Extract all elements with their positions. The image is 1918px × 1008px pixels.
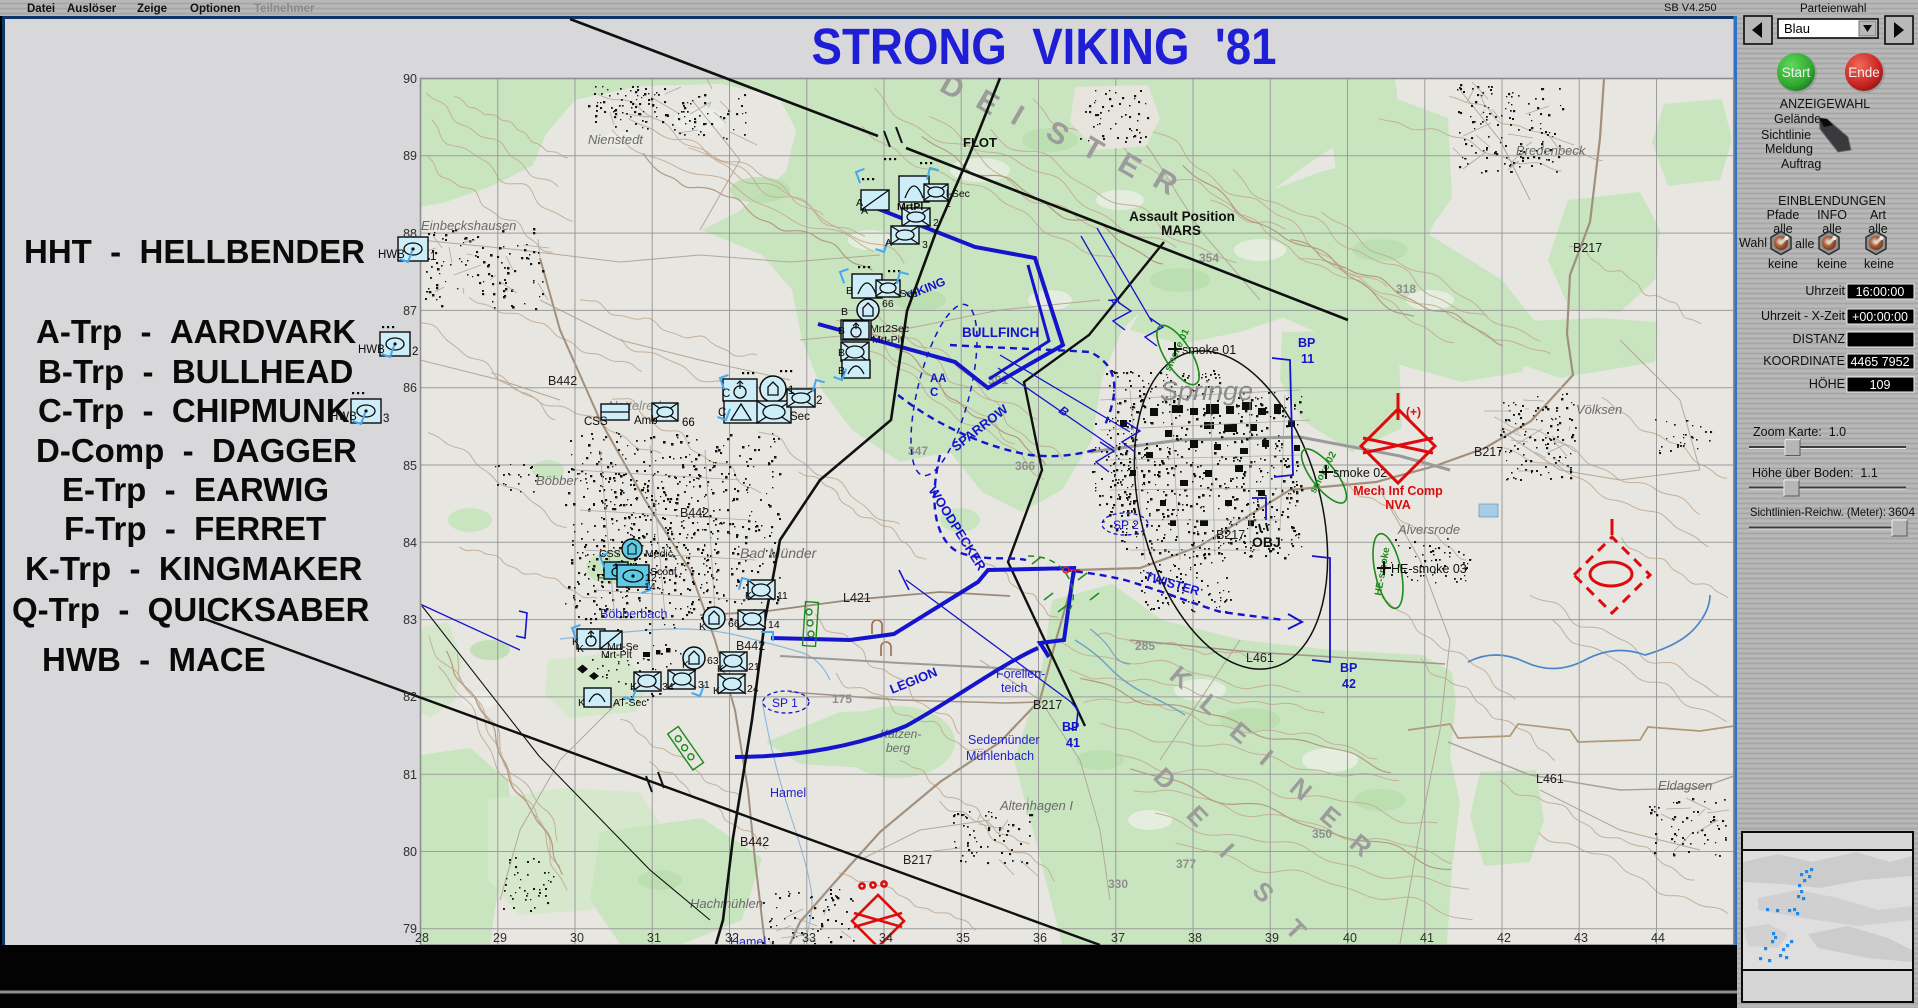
svg-text:B: B — [838, 325, 845, 337]
svg-text:3: 3 — [383, 413, 389, 425]
svg-text:Q-Trp - QUICKSABER: Q-Trp - QUICKSABER — [12, 591, 370, 628]
svg-text:88: 88 — [403, 227, 417, 241]
svg-text:F: F — [597, 572, 603, 584]
svg-text:C: C — [718, 407, 726, 419]
svg-text:BP: BP — [1062, 720, 1079, 734]
svg-text:80: 80 — [403, 845, 417, 859]
svg-text:L461: L461 — [1246, 651, 1274, 665]
svg-text:A-Trp - AARDVARK: A-Trp - AARDVARK — [36, 313, 356, 350]
svg-text:K: K — [578, 697, 585, 709]
svg-text:Pfade: Pfade — [1767, 208, 1800, 222]
svg-text:DISTANZ: DISTANZ — [1792, 332, 1845, 346]
svg-text:16:00:00: 16:00:00 — [1856, 285, 1905, 299]
svg-text:Sedemünder: Sedemünder — [968, 733, 1040, 747]
svg-text:SB V4.250: SB V4.250 — [1664, 2, 1717, 14]
svg-text:28: 28 — [415, 931, 429, 945]
svg-text:81: 81 — [403, 768, 417, 782]
svg-text:330: 330 — [1108, 877, 1128, 891]
svg-text:Amb: Amb — [634, 415, 658, 427]
svg-text:41: 41 — [1420, 931, 1434, 945]
svg-text:HWB: HWB — [358, 344, 385, 356]
svg-text:66: 66 — [682, 417, 695, 429]
svg-text:Start: Start — [1782, 65, 1811, 80]
svg-text:318: 318 — [1396, 282, 1416, 296]
svg-text:Assault Position: Assault Position — [1129, 209, 1235, 224]
svg-text:31: 31 — [698, 679, 710, 691]
svg-text:Alversrode: Alversrode — [1397, 522, 1460, 537]
svg-text:K: K — [717, 663, 724, 675]
svg-text:K: K — [682, 659, 689, 671]
svg-text:B: B — [838, 347, 845, 359]
svg-text:K: K — [745, 590, 752, 602]
svg-text:AA: AA — [930, 373, 947, 385]
svg-text:SP 2: SP 2 — [1113, 518, 1139, 532]
svg-text:Sec: Sec — [790, 411, 810, 423]
svg-text:K: K — [713, 685, 720, 697]
svg-text:F-Trp - FERRET: F-Trp - FERRET — [64, 510, 326, 547]
svg-text:66: 66 — [882, 298, 894, 310]
svg-text:C: C — [722, 388, 730, 400]
svg-text:Mrt-Plt: Mrt-Plt — [601, 649, 632, 661]
svg-text:-Sec: -Sec — [896, 288, 918, 300]
svg-text:K: K — [699, 621, 706, 633]
svg-text:42: 42 — [1342, 677, 1356, 691]
svg-text:85: 85 — [403, 459, 417, 473]
svg-text:Blau: Blau — [1784, 21, 1810, 36]
svg-text:Datei: Datei — [27, 3, 55, 15]
svg-text:35: 35 — [956, 931, 970, 945]
svg-text:43: 43 — [1574, 931, 1588, 945]
svg-text:Böbber: Böbber — [536, 473, 579, 488]
svg-text:D-Comp - DAGGER: D-Comp - DAGGER — [36, 432, 357, 469]
svg-text:Gelände: Gelände — [1774, 112, 1821, 126]
svg-text:37: 37 — [1111, 931, 1125, 945]
svg-text:377: 377 — [1176, 857, 1196, 871]
svg-text:90: 90 — [403, 72, 417, 86]
svg-text:36: 36 — [1033, 931, 1047, 945]
svg-text:B-Trp - BULLHEAD: B-Trp - BULLHEAD — [38, 353, 353, 390]
svg-text:A: A — [861, 205, 868, 217]
svg-text:STRONG VIKING '81: STRONG VIKING '81 — [812, 18, 1277, 75]
svg-text:smoke 01: smoke 01 — [1182, 343, 1236, 357]
svg-text:K-Trp - KINGMAKER: K-Trp - KINGMAKER — [25, 550, 362, 587]
svg-text:Altenhagen I: Altenhagen I — [999, 798, 1073, 813]
svg-text:FLOT: FLOT — [963, 135, 997, 150]
svg-text:HWB: HWB — [378, 249, 405, 261]
svg-text:Art: Art — [1870, 208, 1887, 222]
svg-text:175: 175 — [832, 692, 852, 706]
svg-text:4465 7952: 4465 7952 — [1850, 355, 1909, 369]
svg-text:86: 86 — [403, 381, 417, 395]
svg-text:B: B — [838, 365, 845, 377]
svg-text:A: A — [885, 237, 892, 249]
svg-text:L461: L461 — [1536, 772, 1564, 786]
svg-text:BP: BP — [1340, 661, 1357, 675]
svg-text:Mühlenbach: Mühlenbach — [966, 749, 1034, 763]
svg-text:B217: B217 — [903, 853, 932, 867]
svg-text:1: 1 — [788, 385, 794, 397]
svg-text:84: 84 — [403, 536, 417, 550]
svg-text:B: B — [846, 285, 853, 297]
svg-text:Parteienwahl: Parteienwahl — [1800, 3, 1866, 15]
svg-text:B217: B217 — [1033, 698, 1062, 712]
svg-text:Einbeckshausen: Einbeckshausen — [421, 218, 516, 233]
svg-text:smoke 02: smoke 02 — [1333, 466, 1387, 480]
svg-text:BULLFINCH: BULLFINCH — [962, 325, 1039, 340]
svg-text:31: 31 — [647, 931, 661, 945]
svg-text:Sichtlinie: Sichtlinie — [1761, 128, 1811, 142]
svg-text:42: 42 — [1497, 931, 1511, 945]
svg-text:1: 1 — [430, 251, 436, 263]
svg-text:Völksen: Völksen — [1576, 402, 1622, 417]
svg-text:B217: B217 — [1573, 241, 1602, 255]
svg-text:MrtPl: MrtPl — [897, 201, 923, 213]
svg-text:Bredenbeck: Bredenbeck — [1516, 143, 1587, 158]
svg-text:41: 41 — [1066, 736, 1080, 750]
svg-text:Sichtlinien-Reichw. (Meter):: Sichtlinien-Reichw. (Meter): — [1750, 505, 1886, 519]
svg-text:ANZEIGEWAHL: ANZEIGEWAHL — [1780, 97, 1871, 111]
svg-text:366: 366 — [1015, 459, 1035, 473]
svg-text:BP: BP — [1298, 336, 1315, 350]
svg-text:NVA: NVA — [1385, 498, 1410, 512]
svg-text:Medic: Medic — [645, 548, 673, 560]
svg-text:Höhe über Boden: 1.1: Höhe über Boden: 1.1 — [1752, 466, 1878, 480]
svg-text:B: B — [841, 306, 848, 318]
svg-text:keine: keine — [1768, 257, 1798, 271]
svg-text:+00:00:00: +00:00:00 — [1852, 310, 1908, 324]
svg-text:Meldung: Meldung — [1765, 142, 1813, 156]
svg-text:AT-Sec: AT-Sec — [613, 697, 647, 709]
svg-text:89: 89 — [403, 149, 417, 163]
svg-text:Zoom Karte: 1.0: Zoom Karte: 1.0 — [1753, 425, 1846, 439]
svg-text:32: 32 — [725, 931, 739, 945]
svg-text:Eldagsen: Eldagsen — [1658, 778, 1712, 793]
svg-text:MARS: MARS — [1161, 223, 1201, 238]
svg-text:B442: B442 — [680, 506, 709, 520]
svg-text:1: 1 — [945, 198, 951, 210]
svg-text:OBJ: OBJ — [1252, 534, 1281, 550]
svg-text:Teilnehmer: Teilnehmer — [254, 3, 315, 15]
svg-text:Zeige: Zeige — [137, 3, 167, 15]
svg-text:CSS: CSS — [599, 548, 621, 560]
svg-text:K: K — [630, 681, 637, 693]
svg-text:Auslöser: Auslöser — [67, 3, 117, 15]
svg-text:Ende: Ende — [1848, 65, 1880, 80]
svg-text:Wahl: Wahl — [1739, 236, 1767, 250]
svg-text:Auftrag: Auftrag — [1781, 157, 1821, 171]
svg-text:C: C — [930, 387, 938, 399]
svg-text:40: 40 — [1343, 931, 1357, 945]
svg-text:INFO: INFO — [1817, 208, 1847, 222]
svg-text:Uhrzeit - X-Zeit: Uhrzeit - X-Zeit — [1761, 309, 1846, 323]
svg-text:EINBLENDUNGEN: EINBLENDUNGEN — [1778, 194, 1886, 208]
svg-text:keine: keine — [1817, 257, 1847, 271]
svg-text:11: 11 — [1301, 352, 1314, 366]
svg-text:29: 29 — [493, 931, 507, 945]
svg-text:teich: teich — [1001, 681, 1027, 695]
svg-text:keine: keine — [1864, 257, 1894, 271]
svg-text:2: 2 — [933, 217, 939, 229]
svg-text:Forellen-: Forellen- — [996, 667, 1045, 681]
svg-text:66: 66 — [728, 618, 740, 630]
svg-text:Springe: Springe — [1160, 376, 1253, 406]
svg-text:2: 2 — [816, 395, 822, 407]
svg-text:Optionen: Optionen — [190, 3, 240, 15]
svg-text:14: 14 — [768, 619, 780, 631]
svg-text:Uhrzeit: Uhrzeit — [1805, 284, 1845, 298]
svg-text:HHT - HELLBENDER: HHT - HELLBENDER — [24, 233, 365, 270]
svg-text:285: 285 — [1135, 639, 1155, 653]
svg-text:21: 21 — [748, 661, 760, 673]
svg-text:SP 1: SP 1 — [772, 696, 798, 710]
svg-text:L421: L421 — [843, 591, 871, 605]
svg-text:87: 87 — [403, 304, 417, 318]
svg-text:alle: alle — [1795, 237, 1815, 251]
svg-text:B217: B217 — [1474, 445, 1503, 459]
svg-text:E-Trp - EARWIG: E-Trp - EARWIG — [62, 471, 329, 508]
svg-text:Mech Inf Comp: Mech Inf Comp — [1353, 484, 1443, 498]
svg-text:HE-smoke 03: HE-smoke 03 — [1391, 562, 1467, 576]
svg-text:14: 14 — [644, 581, 656, 593]
svg-text:B442: B442 — [548, 374, 577, 388]
svg-text:44: 44 — [1651, 931, 1665, 945]
svg-text:Böbberbach: Böbberbach — [600, 607, 667, 621]
svg-text:39: 39 — [1265, 931, 1279, 945]
svg-text:HÖHE: HÖHE — [1809, 377, 1845, 391]
svg-text:33: 33 — [802, 931, 816, 945]
svg-text:berg: berg — [886, 741, 910, 755]
svg-text:3: 3 — [922, 239, 928, 251]
svg-text:K: K — [577, 643, 584, 655]
svg-text:HWB - MACE: HWB - MACE — [42, 641, 266, 678]
svg-text:109: 109 — [1870, 378, 1891, 392]
svg-text:82: 82 — [403, 690, 417, 704]
svg-text:C-Trp - CHIPMUNK: C-Trp - CHIPMUNK — [38, 392, 350, 429]
svg-text:83: 83 — [403, 613, 417, 627]
svg-text:Nienstedt: Nienstedt — [588, 132, 644, 147]
svg-text:34: 34 — [662, 681, 674, 693]
svg-text:Hamel: Hamel — [770, 786, 806, 800]
svg-text:34: 34 — [879, 931, 893, 945]
svg-text:B442: B442 — [740, 835, 769, 849]
svg-text:30: 30 — [570, 931, 584, 945]
svg-text:(+): (+) — [1406, 405, 1421, 419]
svg-text:Mrt-Pit: Mrt-Pit — [872, 334, 903, 346]
svg-text:38: 38 — [1188, 931, 1202, 945]
svg-text:2: 2 — [412, 346, 418, 358]
svg-text:KOORDINATE: KOORDINATE — [1763, 354, 1845, 368]
svg-text:3604: 3604 — [1888, 505, 1915, 519]
svg-text:B217: B217 — [1216, 528, 1245, 542]
svg-text:CSS: CSS — [584, 416, 608, 428]
svg-text:11: 11 — [777, 590, 788, 602]
svg-text:24: 24 — [747, 683, 759, 695]
